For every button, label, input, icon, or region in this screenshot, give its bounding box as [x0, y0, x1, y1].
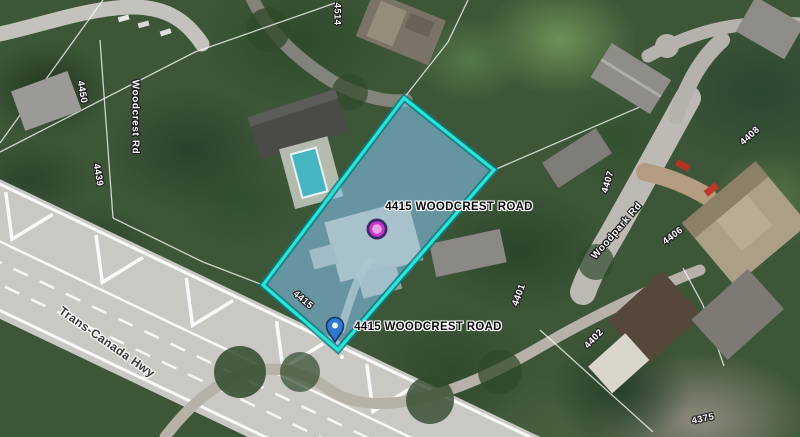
map-canvas [0, 0, 800, 437]
selection-marker-icon[interactable] [367, 219, 388, 240]
aerial-map[interactable]: Trans-Canada Hwy Woodcrest Rd Woodpark R… [0, 0, 800, 437]
road-dot [340, 355, 344, 359]
